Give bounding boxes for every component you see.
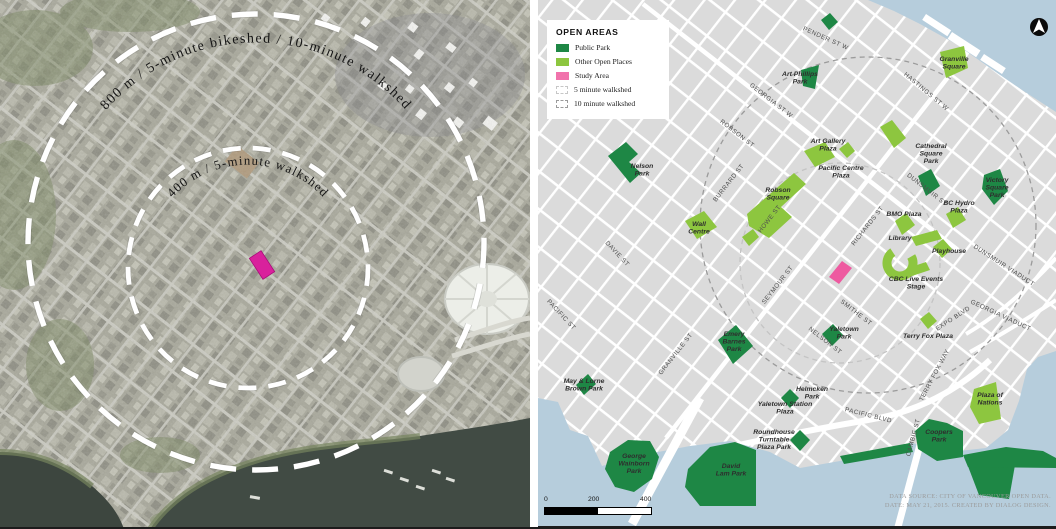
aerial-map: 800 m / 5-minute bikeshed / 10-minute wa…	[0, 0, 530, 529]
north-arrow-icon	[1030, 18, 1048, 36]
scale-bar-rule	[544, 507, 652, 515]
data-source-line: DATA SOURCE: CITY OF VANCOUVER OPEN DATA…	[885, 492, 1051, 501]
public-park-swatch	[556, 44, 569, 52]
scale-tick: 200	[588, 496, 599, 503]
study-area-swatch	[556, 72, 569, 80]
walkshed-figure: 800 m / 5-minute bikeshed / 10-minute wa…	[0, 0, 1056, 529]
arena	[398, 357, 444, 391]
open-place-label: RobsonSquare	[765, 187, 790, 201]
legend-item-10-minute-walkshed: 10 minute walkshed	[556, 99, 661, 108]
legend: OPEN AREAS Public Park Other Open Places…	[547, 20, 669, 119]
open-place-label: Terry Fox Plaza	[903, 333, 953, 340]
legend-item-other-open-places: Other Open Places	[556, 57, 661, 66]
other-open-places-swatch	[556, 58, 569, 66]
legend-item-label: Public Park	[575, 43, 610, 52]
data-source-line: DATE: MAY 21, 2015. CREATED BY DIALOG DE…	[885, 501, 1051, 510]
aerial-map-panel: 800 m / 5-minute bikeshed / 10-minute wa…	[0, 0, 530, 529]
open-place-label: BMO Plaza	[886, 211, 921, 218]
stadium-dome	[445, 264, 529, 334]
scale-bar: 0 200 400	[544, 496, 654, 515]
open-place-label: Plaza ofNations	[977, 392, 1003, 406]
open-place-label: Playhouse	[932, 248, 966, 255]
scale-bar-fill	[545, 508, 598, 514]
ten-minute-walkshed-swatch	[556, 100, 568, 108]
open-place-label: GranvilleSquare	[939, 56, 968, 70]
legend-item-label: Study Area	[575, 71, 609, 80]
legend-item-label: 5 minute walkshed	[574, 85, 631, 94]
scale-tick: 400	[640, 496, 651, 503]
legend-item-5-minute-walkshed: 5 minute walkshed	[556, 85, 661, 94]
data-source-note: DATA SOURCE: CITY OF VANCOUVER OPEN DATA…	[885, 492, 1051, 510]
five-minute-walkshed-swatch	[556, 86, 568, 94]
scale-bar-ticks: 0 200 400	[544, 496, 654, 507]
legend-item-label: Other Open Places	[575, 57, 632, 66]
legend-item-label: 10 minute walkshed	[574, 99, 635, 108]
legend-title: OPEN AREAS	[556, 27, 661, 37]
park-label: RoundhouseTurntablePlaza Park	[753, 429, 795, 451]
open-areas-map-panel: PENDER ST W HASTINGS ST W GEORGIA ST W R…	[538, 0, 1056, 529]
park-label: May & LorneBrown Park	[564, 378, 605, 392]
scale-tick: 0	[544, 496, 548, 503]
legend-item-public-park: Public Park	[556, 43, 661, 52]
legend-item-study-area: Study Area	[556, 71, 661, 80]
open-place-label: Library	[888, 235, 912, 242]
